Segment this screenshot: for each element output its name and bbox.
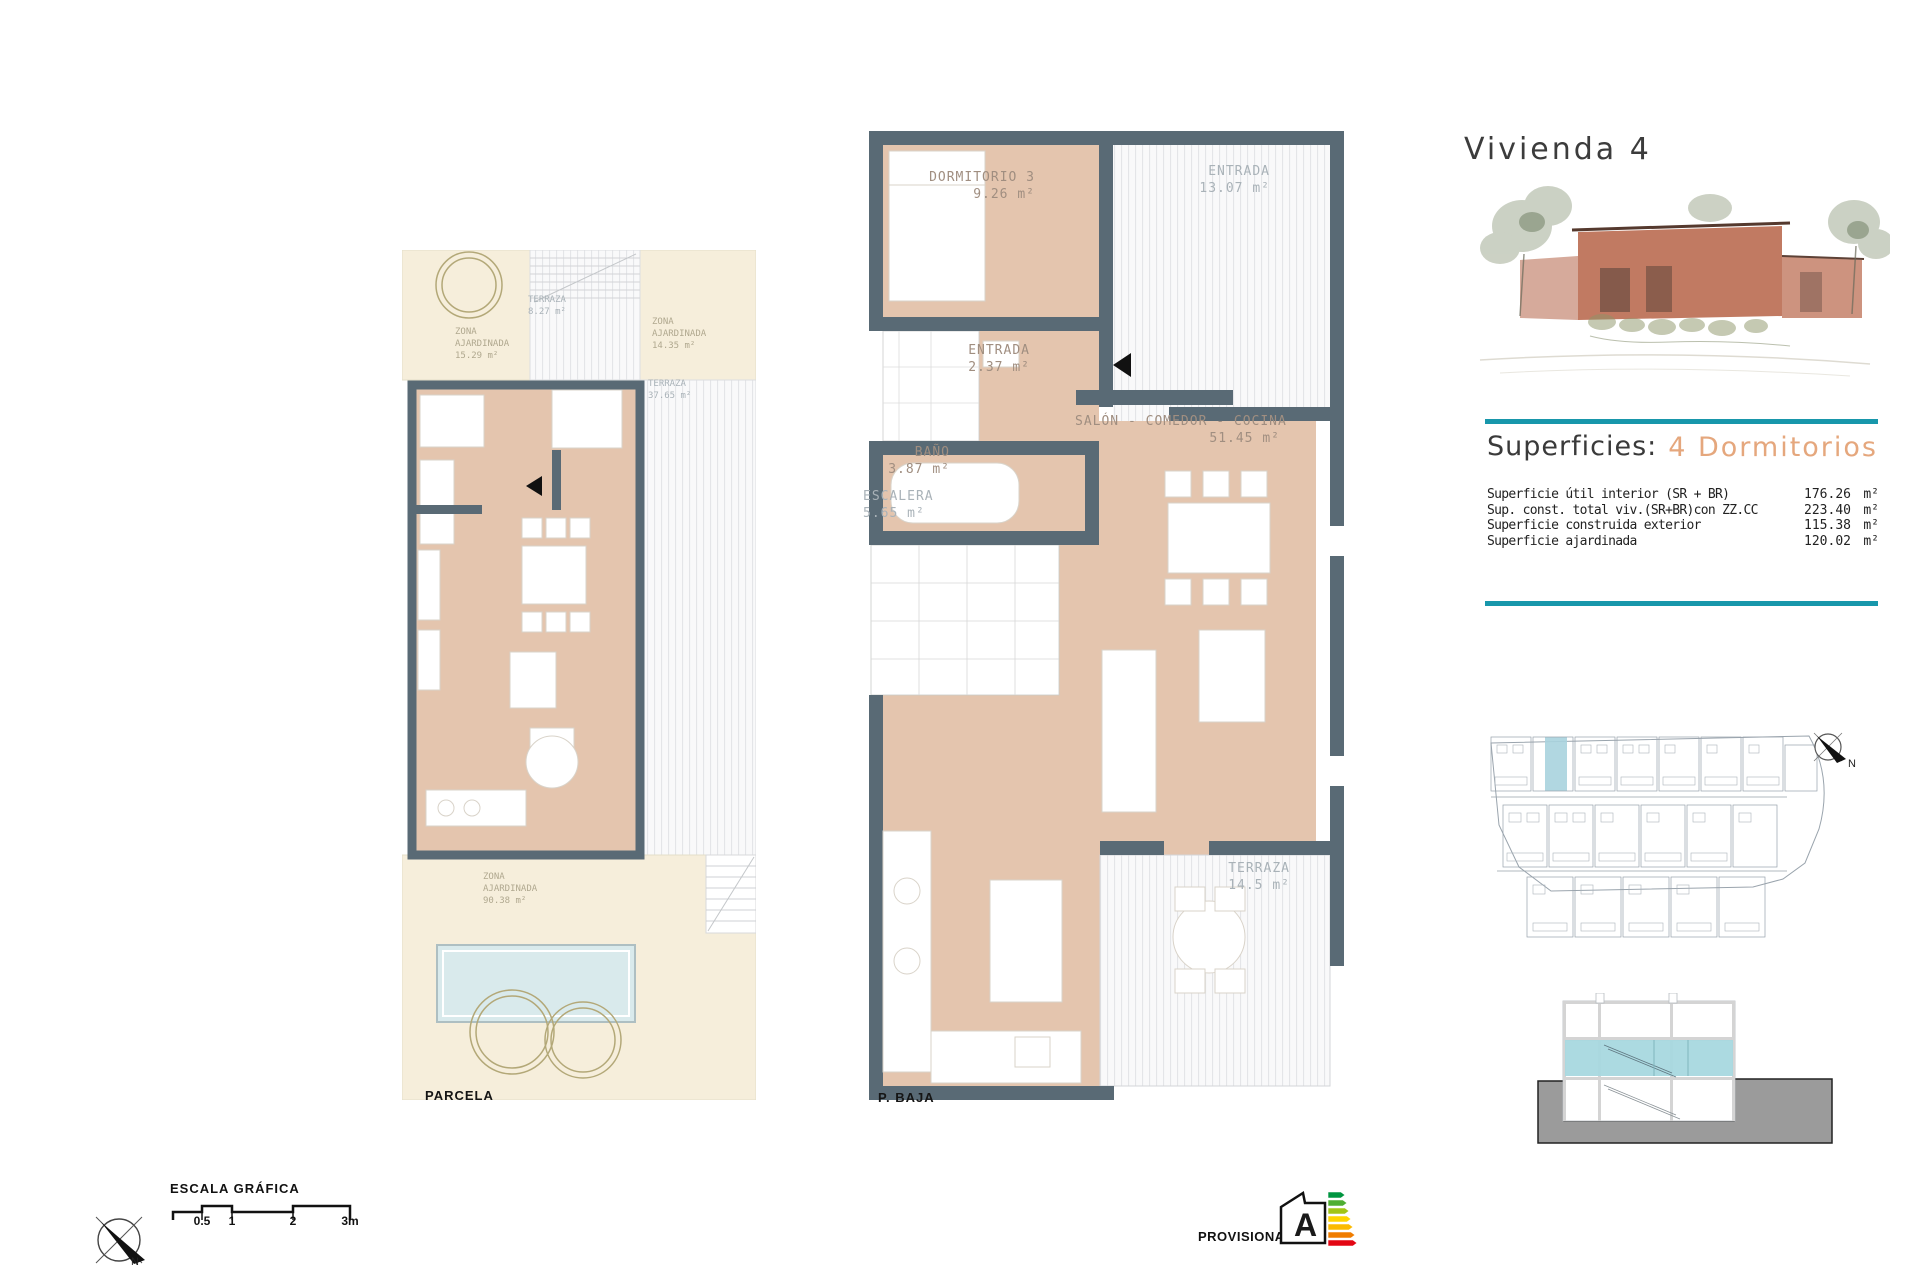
north-label: N	[1848, 758, 1856, 770]
room-label-entrada-exterior: ENTRADA 13.07 m²	[1150, 164, 1270, 198]
scale-tick: 3m	[335, 1214, 365, 1228]
parcela-caption: PARCELA	[425, 1088, 494, 1103]
scale-title: ESCALA GRÁFICA	[170, 1181, 300, 1196]
room-label-bano: BAÑO 3.87 m²	[855, 445, 950, 479]
site-key-plan	[1487, 733, 1832, 955]
room-label-dormitorio3: DORMITORIO 3 9.26 m²	[905, 170, 1035, 204]
house-sketch-illustration	[1460, 168, 1890, 398]
energy-rating-icon: A	[1272, 1190, 1372, 1250]
zone-label-jardin-izq: ZONA AJARDINADA 15.29 m²	[455, 326, 517, 362]
zone-label-terraza-alta: TERRAZA 8.27 m²	[528, 294, 566, 318]
room-label-entrada-interior: ENTRADA 2.37 m²	[930, 343, 1030, 377]
room-label-salon: SALÓN - COMEDOR - COCINA 51.45 m²	[1075, 414, 1280, 448]
superficie-row: Sup. const. total viv.(SR+BR)con ZZ.CC 2…	[1487, 503, 1879, 519]
superficies-table: Superficie útil interior (SR + BR) 176.2…	[1487, 487, 1879, 549]
superficie-row: Superficie construida exterior 115.38 m²	[1487, 518, 1879, 534]
scale-tick: 1	[217, 1214, 247, 1228]
building-section-drawing	[1536, 993, 1888, 1151]
superficies-subheading: 4 Dormitorios	[1560, 432, 1878, 463]
teal-divider-top	[1485, 419, 1878, 424]
teal-divider-bottom	[1485, 601, 1878, 606]
sheet-compass-icon	[85, 1200, 175, 1280]
page-title: Vivienda 4	[1464, 132, 1652, 167]
zone-label-jardin-piscina: ZONA AJARDINADA 90.38 m²	[483, 871, 545, 907]
planta-baja-drawing	[869, 131, 1344, 1100]
zone-label-terraza-grande: TERRAZA 37.65 m²	[648, 378, 691, 402]
parcela-plan-drawing	[402, 250, 756, 1100]
superficie-row: Superficie útil interior (SR + BR) 176.2…	[1487, 487, 1879, 503]
north-compass-icon	[1804, 725, 1874, 785]
plan-sheet: TERRAZA 8.27 m² ZONA AJARDINADA 15.29 m²…	[0, 0, 1920, 1280]
superficie-row: Superficie ajardinada 120.02 m²	[1487, 534, 1879, 550]
scale-tick: 0.5	[187, 1214, 217, 1228]
room-label-terraza: TERRAZA 14.5 m²	[1190, 861, 1290, 895]
scale-tick: 2	[278, 1214, 308, 1228]
room-label-escalera: ESCALERA 5.65 m²	[863, 489, 934, 523]
p-baja-caption: P. BAJA	[878, 1090, 935, 1105]
energy-rating-letter: A	[1294, 1207, 1317, 1243]
sheet-north-label: N	[131, 1256, 139, 1268]
zone-label-jardin-der: ZONA AJARDINADA 14.35 m²	[652, 316, 714, 352]
